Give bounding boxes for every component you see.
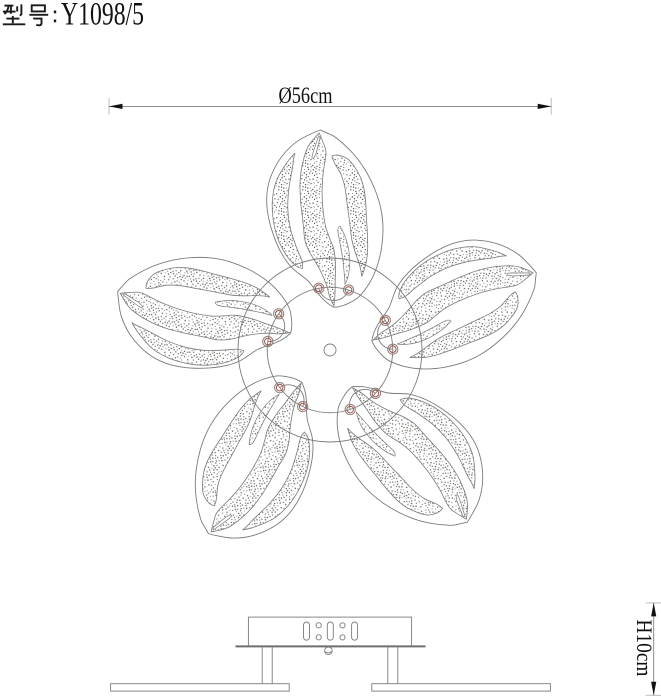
svg-text:Ø56cm: Ø56cm bbox=[279, 83, 333, 109]
svg-text:Y1098/5: Y1098/5 bbox=[61, 0, 144, 33]
svg-text:H10cm: H10cm bbox=[632, 620, 657, 677]
